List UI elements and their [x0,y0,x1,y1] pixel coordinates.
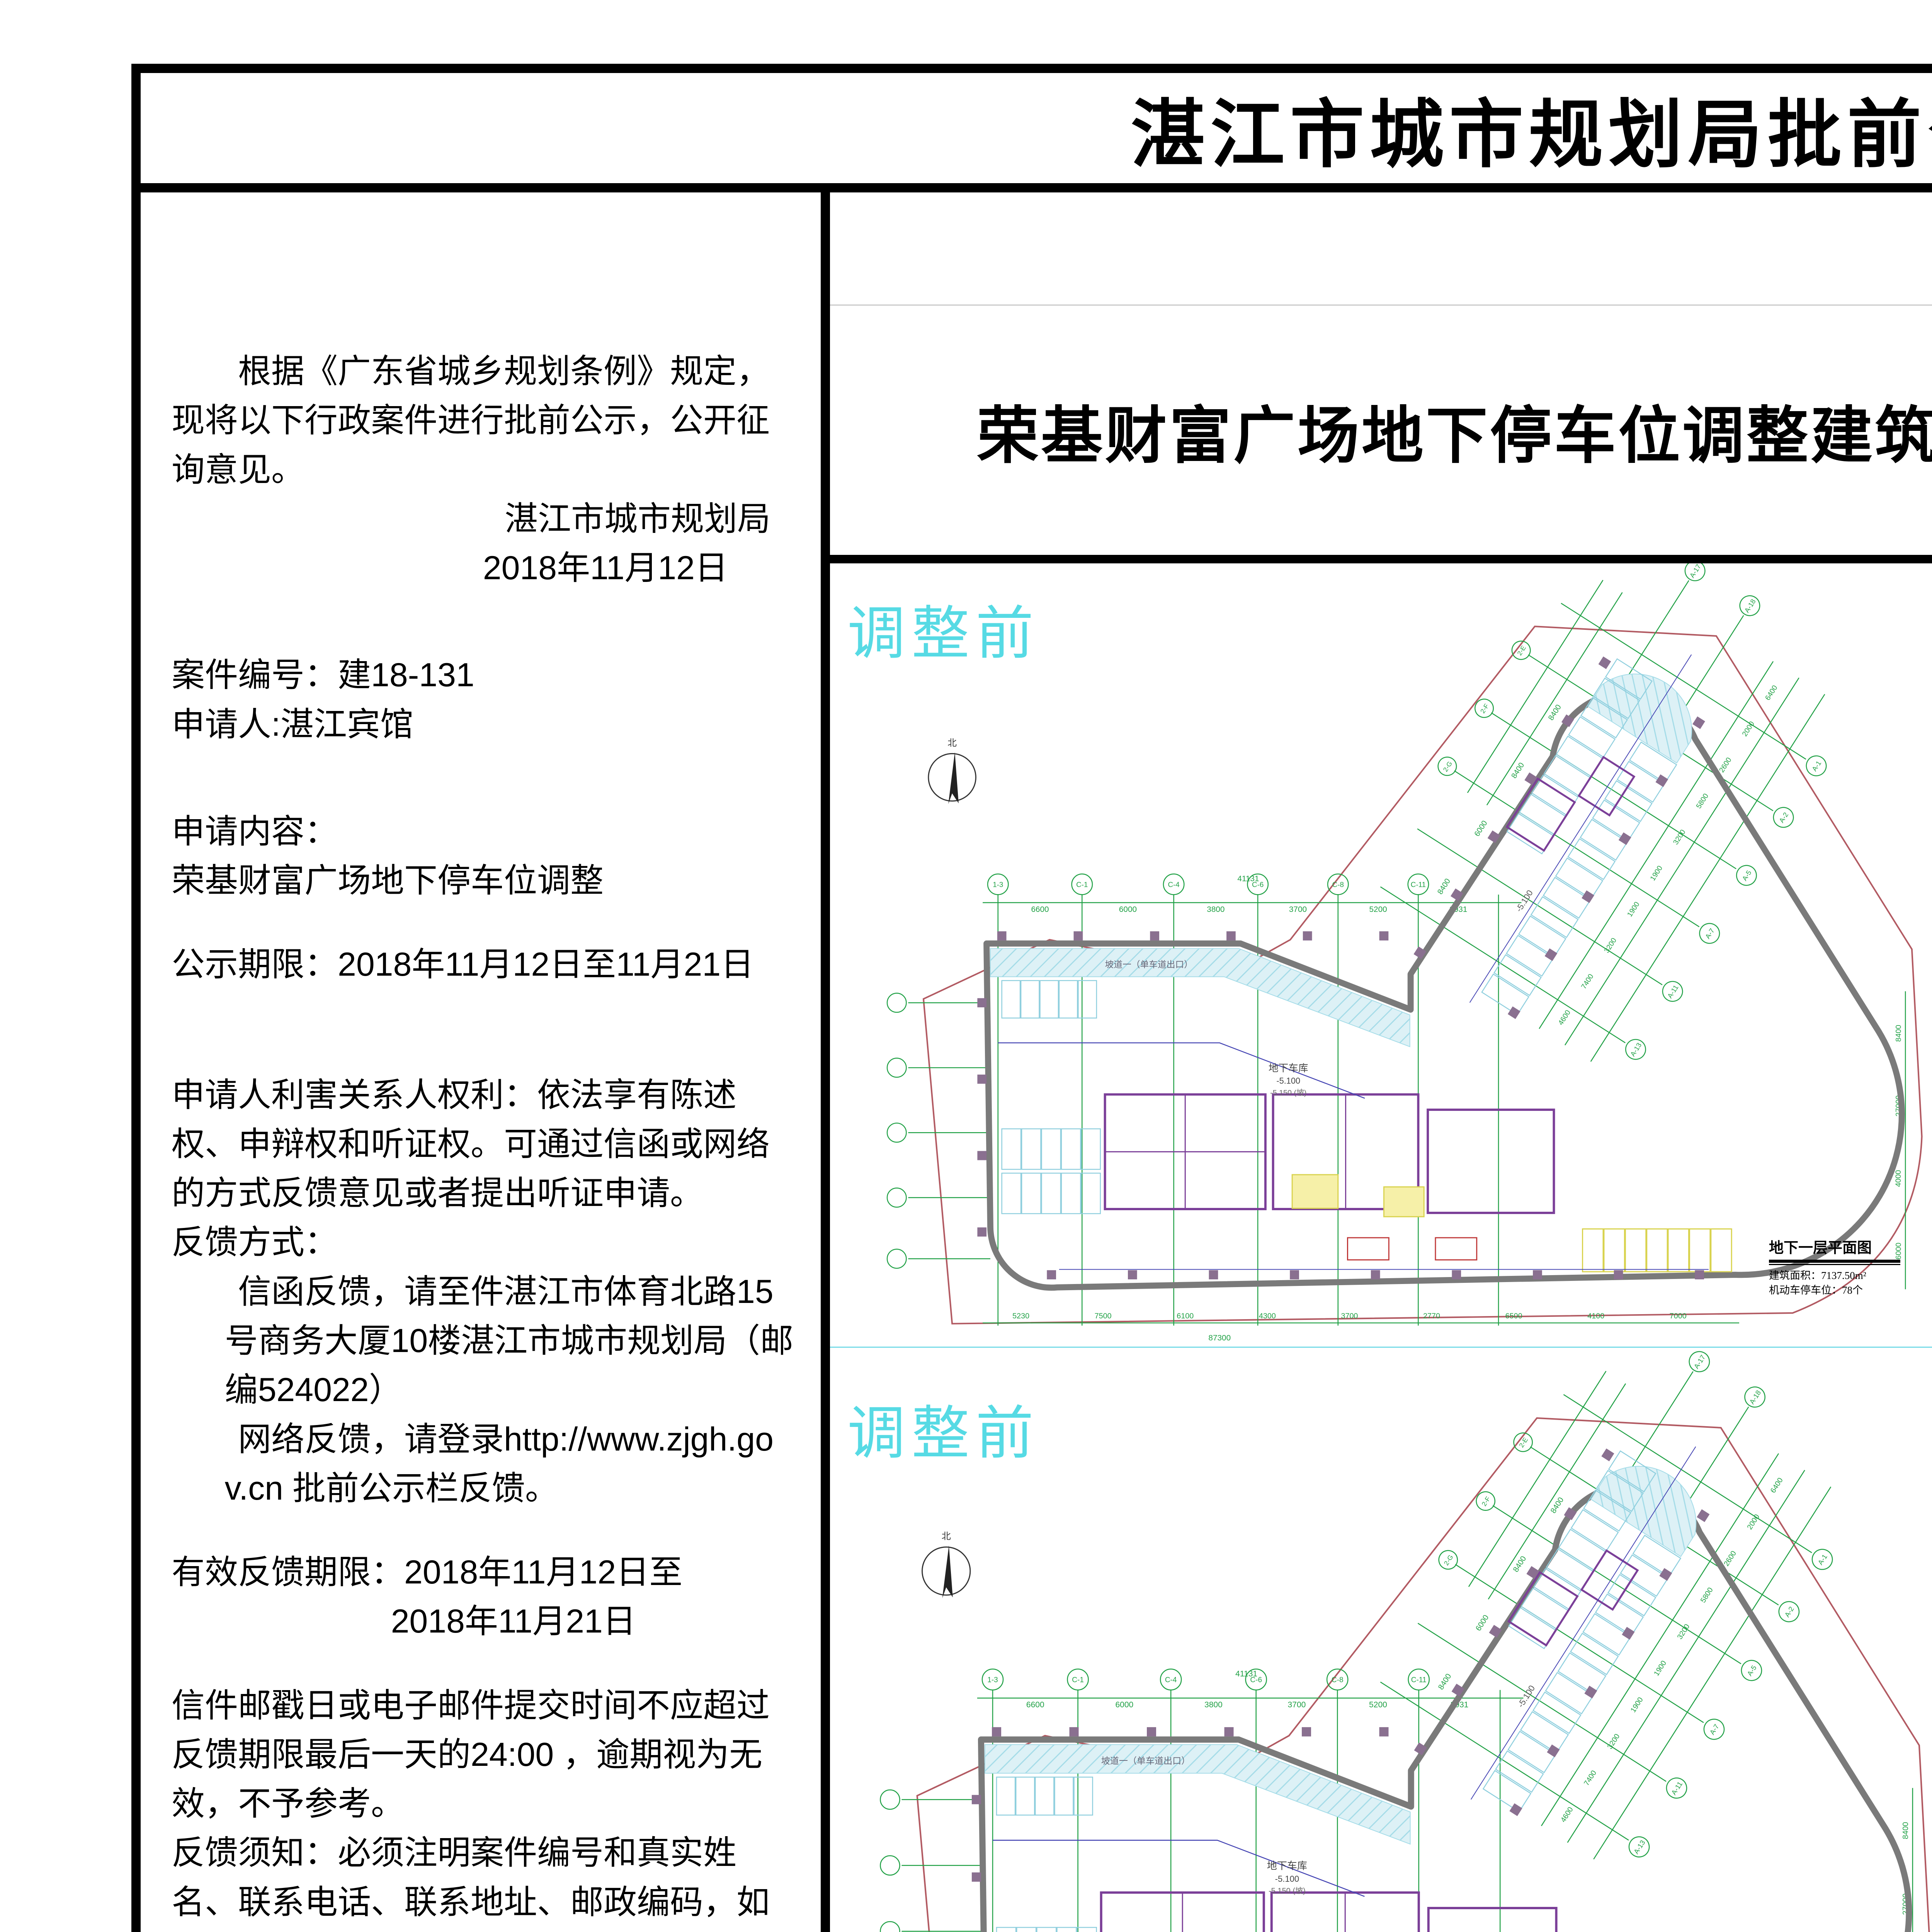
valid-period-line2: 2018年11月21日 [172,1597,794,1646]
vertical-divider [821,192,830,1932]
svg-text:2-E: 2-E [1516,645,1527,657]
plan-caption-title: 地下一层平面图 [1769,1236,1900,1263]
svg-text:2-E: 2-E [1518,1436,1529,1449]
notice-intro: 根据《广东省城乡规划条例》规定，现将以下行政案件进行批前公示，公开征询意见。 [172,347,794,495]
svg-text:地下车库: 地下车库 [1267,1860,1307,1872]
svg-text:北: 北 [947,738,957,748]
svg-text:A-1: A-1 [1816,1553,1829,1566]
svg-text:5800: 5800 [1699,1586,1714,1604]
svg-text:1-3: 1-3 [987,1676,998,1684]
svg-text:6000: 6000 [1474,1614,1490,1633]
svg-text:41131: 41131 [1235,1670,1257,1679]
north-compass-icon: 北 [929,738,976,804]
svg-text:7400: 7400 [1583,1769,1598,1787]
svg-text:A-5: A-5 [1746,1664,1758,1677]
svg-text:3200: 3200 [1672,828,1687,846]
svg-text:2-G: 2-G [1442,760,1454,773]
public-notice-document: { "page": { "title": "湛江市城市规划局批前公示" }, "… [0,0,1932,1932]
drawing-title-zone: 荣基财富广场地下停车位调整建筑方案平面图 [830,306,1932,555]
svg-text:6600: 6600 [1026,1701,1044,1709]
drawing-title: 荣基财富广场地下停车位调整建筑方案平面图 [977,386,1932,475]
main-area: 荣基财富广场地下停车位调整建筑方案平面图 1-3C-1C-4C-6C-8C-11… [830,192,1932,1932]
case-number: 案件编号：建18-131 [172,651,794,700]
svg-text:3200: 3200 [1602,936,1618,954]
svg-text:A-7: A-7 [1708,1723,1721,1736]
svg-text:A-13: A-13 [1632,1839,1646,1855]
svg-text:C-1: C-1 [1072,1676,1084,1684]
svg-text:1900: 1900 [1648,864,1664,882]
svg-text:C-1: C-1 [1076,880,1088,888]
svg-text:1-3: 1-3 [993,880,1003,888]
svg-text:3800: 3800 [1204,1701,1223,1709]
plan-parking: 机动车停车位：78个 [1769,1283,1923,1298]
svg-text:4000: 4000 [1894,1170,1903,1187]
svg-text:5800: 5800 [1694,792,1710,810]
wing-grid: A-17A-18A-13A-11A-7A-5A-2A-12-G2-F2-E840… [1347,1348,1890,1882]
svg-text:7000: 7000 [1670,1312,1687,1320]
svg-text:5200: 5200 [1369,1701,1387,1709]
svg-text:8400: 8400 [1437,1672,1453,1691]
svg-text:8400: 8400 [1436,877,1452,896]
svg-text:C-11: C-11 [1411,1676,1427,1684]
svg-text:3800: 3800 [1207,905,1225,914]
deadline-note: 信件邮戳日或电子邮件提交时间不应超过反馈期限最后一天的24:00 ，逾期视为无效… [172,1681,794,1829]
wing-interior: -5.100 [1408,615,1731,1028]
feedback-notice: 反馈须知：必须注明案件编号和真实姓名、联系电话、联系地址、邮政编码，如反馈信息不… [172,1828,794,1932]
panel-label: 调整前 [847,1386,1040,1470]
svg-text:A-18: A-18 [1743,598,1757,614]
svg-text:7400: 7400 [1580,973,1595,990]
svg-text:-5.150 (坡): -5.150 (坡) [1270,1088,1306,1097]
application-content-label: 申请内容： [172,807,794,856]
svg-text:A-2: A-2 [1783,1605,1796,1618]
ramp-hatch [990,949,1410,1047]
svg-text:8400: 8400 [1512,1554,1528,1573]
feedback-web: 网络反馈，请登录http://www.zjgh.gov.cn 批前公示栏反馈。 [172,1415,794,1514]
svg-text:4100: 4100 [1587,1312,1604,1320]
black-rule [830,555,1932,563]
svg-text:5230: 5230 [1012,1312,1029,1320]
svg-text:5200: 5200 [1369,905,1387,914]
svg-text:A-18: A-18 [1748,1389,1762,1406]
svg-text:A-7: A-7 [1704,927,1716,940]
floor-plan-before-b1: 1-3C-1C-4C-6C-8C-11660060003800370052002… [830,563,1932,1347]
publicity-period: 公示期限：2018年11月12日至11月21日 [172,940,794,989]
plan-area: 建筑面积：7137.50m² [1769,1269,1923,1283]
ramp-label: 坡道一（单车道出口） [1101,1756,1190,1766]
svg-text:3200: 3200 [1676,1623,1691,1641]
svg-text:8400: 8400 [1901,1822,1910,1839]
svg-text:6600: 6600 [1031,905,1049,914]
svg-text:A-17: A-17 [1692,1354,1707,1370]
svg-text:地下车库: 地下车库 [1269,1063,1308,1074]
svg-text:8400: 8400 [1894,1025,1903,1042]
svg-text:2770: 2770 [1423,1312,1440,1320]
svg-text:A-11: A-11 [1666,983,1680,999]
svg-text:3700: 3700 [1341,1312,1358,1320]
svg-text:7500: 7500 [1095,1312,1112,1320]
svg-text:2-F: 2-F [1479,702,1490,714]
building-outline [986,693,1902,1288]
svg-text:A-13: A-13 [1629,1041,1643,1058]
wing-interior: -5.100 [1408,1406,1736,1825]
svg-text:8400: 8400 [1549,1496,1565,1515]
svg-text:C-11: C-11 [1411,880,1426,888]
svg-text:4600: 4600 [1559,1806,1575,1824]
svg-text:2-G: 2-G [1442,1554,1454,1567]
svg-text:8400: 8400 [1510,761,1526,780]
svg-text:2600: 2600 [1718,756,1733,774]
wing-grid: A-17A-18A-13A-11A-7A-5A-2A-12-G2-F2-E840… [1347,563,1883,1084]
issuer: 湛江市城市规划局 [172,495,794,544]
svg-text:北: 北 [942,1531,951,1542]
svg-text:4300: 4300 [1259,1312,1276,1320]
svg-text:1900: 1900 [1653,1659,1668,1677]
svg-text:1900: 1900 [1629,1696,1645,1714]
applicant: 申请人:湛江宾馆 [172,700,794,749]
svg-text:C-4: C-4 [1168,880,1179,888]
ramp-label: 坡道一（单车道出口） [1105,959,1193,969]
svg-text:C-8: C-8 [1332,880,1344,888]
ramp-hatch [985,1745,1410,1844]
svg-text:-5.150 (坡): -5.150 (坡) [1269,1886,1306,1895]
svg-text:2600: 2600 [1723,1549,1738,1568]
content-area: 根据《广东省城乡规划条例》规定，现将以下行政案件进行批前公示，公开征询意见。 湛… [141,192,1932,1932]
svg-text:-5.100: -5.100 [1275,1874,1299,1884]
feedback-method-label: 反馈方式： [172,1218,794,1267]
svg-text:A-1: A-1 [1810,759,1823,772]
svg-text:1900: 1900 [1626,900,1641,918]
svg-text:A-17: A-17 [1688,563,1702,579]
svg-text:C-4: C-4 [1165,1676,1177,1684]
svg-text:3700: 3700 [1289,905,1307,914]
top-strip [830,192,1932,304]
svg-text:C-8: C-8 [1332,1676,1344,1684]
svg-text:2000: 2000 [1746,1513,1761,1531]
svg-text:6000: 6000 [1119,905,1137,914]
svg-text:A-5: A-5 [1741,869,1753,882]
svg-text:41131: 41131 [1237,874,1259,883]
issue-date: 2018年11月12日 [172,544,794,593]
svg-text:3200: 3200 [1606,1733,1621,1751]
plans-grid: 1-3C-1C-4C-6C-8C-11660060003800370052002… [830,563,1932,1932]
left-panel: 根据《广东省城乡规划条例》规定，现将以下行政案件进行批前公示，公开征询意见。 湛… [141,192,821,1932]
svg-text:4600: 4600 [1556,1009,1572,1026]
svg-text:-5.100: -5.100 [1276,1076,1300,1086]
title-bar: 湛江市城市规划局批前公示 [141,73,1932,192]
svg-text:8400: 8400 [1547,703,1563,722]
svg-text:2-F: 2-F [1480,1495,1492,1508]
svg-text:87300: 87300 [1208,1333,1231,1342]
notice-sheet: 湛江市城市规划局批前公示 根据《广东省城乡规划条例》规定，现将以下行政案件进行批… [131,64,1932,1932]
application-content: 荣基财富广场地下停车位调整 [172,856,794,905]
feedback-mail: 信函反馈，请至件湛江市体育北路15号商务大厦10楼湛江市城市规划局（邮编5240… [172,1267,794,1415]
quad-before-b1: 1-3C-1C-4C-6C-8C-11660060003800370052002… [830,563,1932,1347]
svg-text:A-11: A-11 [1670,1780,1684,1796]
svg-text:6400: 6400 [1764,684,1779,701]
svg-text:3700: 3700 [1288,1701,1306,1709]
svg-text:6500: 6500 [1505,1312,1522,1320]
svg-text:6000: 6000 [1473,819,1489,838]
caption-underline [1769,1264,1900,1265]
svg-text:6400: 6400 [1769,1476,1784,1495]
panel-label: 调整前 [847,587,1040,670]
body-interior: 地下车库-5.100-5.150 (坡) [977,931,1731,1279]
svg-text:A-2: A-2 [1777,811,1790,824]
svg-text:6000: 6000 [1115,1701,1133,1709]
svg-text:2000: 2000 [1740,720,1756,738]
svg-text:6100: 6100 [1177,1312,1194,1320]
north-compass-icon: 北 [922,1531,970,1598]
rights-statement: 申请人利害关系人权利：依法享有陈述权、申辩权和听证权。可通过信函或网络的方式反馈… [172,1071,794,1218]
page-title: 湛江市城市规划局批前公示 [1131,75,1932,182]
valid-period-line1: 有效反馈期限：2018年11月12日至 [172,1548,794,1597]
quad-before-b2: 1-3C-1C-4C-6C-8C-11660060003800370052002… [830,1348,1932,1932]
plan-caption: 地下一层平面图 建筑面积：7137.50m² 机动车停车位：78个 [1769,1236,1923,1298]
